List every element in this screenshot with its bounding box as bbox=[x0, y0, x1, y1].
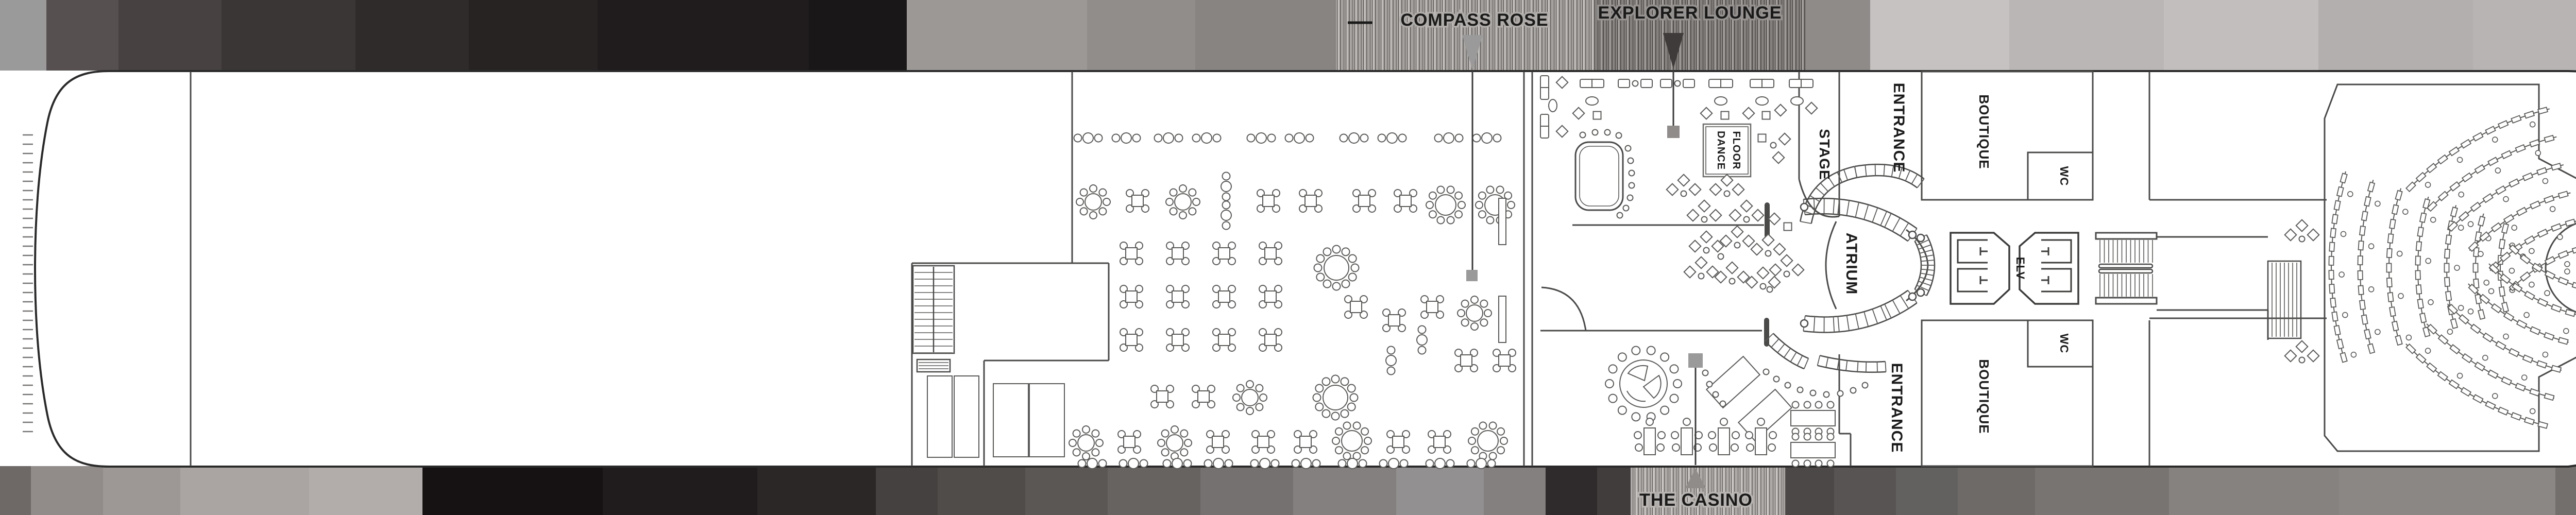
explorer-lounge-label: EXPLORER LOUNGE bbox=[1598, 3, 1782, 23]
deck-plan-svg: COMPASS ROSE EXPLORER LOUNGE THE CASINO … bbox=[0, 0, 2576, 515]
stern-hull-hatching bbox=[23, 135, 33, 432]
entrance-top-label: ENTRANCE bbox=[1890, 83, 1907, 173]
deck-plan: COMPASS ROSE EXPLORER LOUNGE THE CASINO … bbox=[0, 0, 2576, 515]
casino-marker bbox=[1688, 353, 1703, 368]
dance-floor-label-line2: FLOOR bbox=[1731, 131, 1742, 170]
atrium-label: ATRIUM bbox=[1843, 233, 1860, 295]
explorer-lounge-marker bbox=[1667, 126, 1680, 138]
compass-rose-label: COMPASS ROSE bbox=[1400, 10, 1548, 30]
dance-floor-box bbox=[1703, 124, 1751, 177]
wc-bottom-label: WC bbox=[2058, 334, 2071, 354]
boutique-top-label: BOUTIQUE bbox=[1976, 94, 1992, 169]
the-casino-label: THE CASINO bbox=[1639, 490, 1753, 510]
boutique-bottom-label: BOUTIQUE bbox=[1976, 359, 1992, 434]
elv-label: ELV bbox=[2014, 257, 2027, 280]
compass-rose-marker bbox=[1466, 270, 1478, 281]
dance-floor-label-line1: DANCE bbox=[1715, 131, 1726, 170]
entrance-bottom-label: ENTRANCE bbox=[1888, 363, 1905, 453]
wc-top-label: WC bbox=[2058, 166, 2071, 186]
stage-label: STAGE bbox=[1817, 129, 1833, 180]
ship-hull-outline bbox=[35, 71, 2576, 467]
